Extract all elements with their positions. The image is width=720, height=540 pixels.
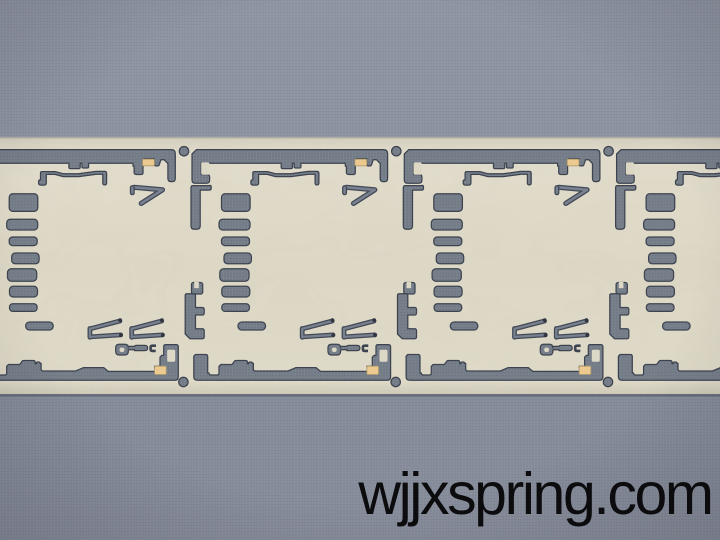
svg-text:wjjxspring.com: wjjxspring.com [357,461,711,527]
